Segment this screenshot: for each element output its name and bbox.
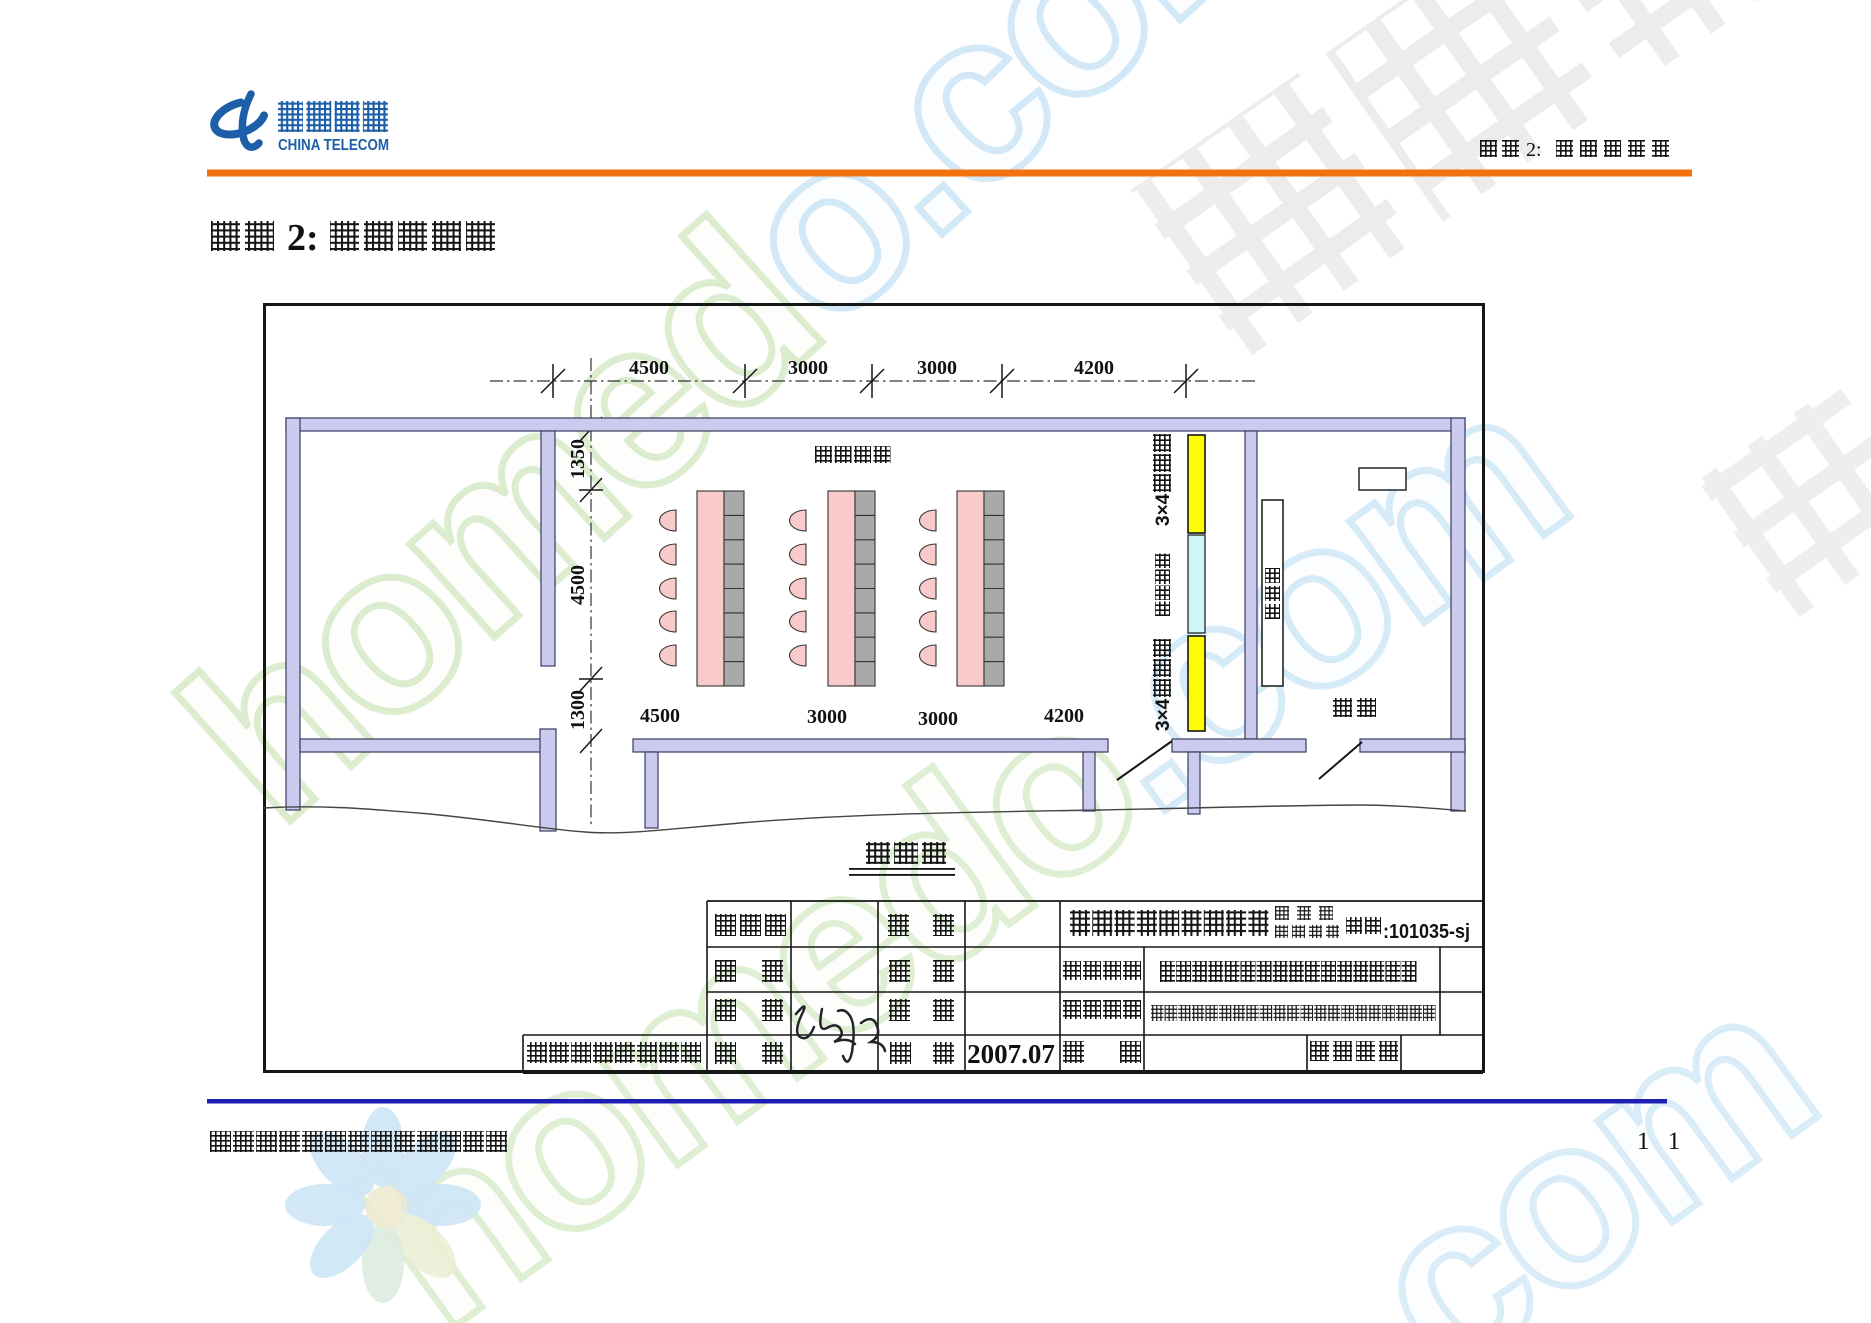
svg-text:4500: 4500 bbox=[567, 565, 589, 605]
svg-text:2007.07: 2007.07 bbox=[967, 1039, 1055, 1069]
svg-text:3000: 3000 bbox=[807, 706, 847, 728]
svg-text:CHINA TELECOM: CHINA TELECOM bbox=[278, 137, 389, 154]
svg-text:1300: 1300 bbox=[567, 690, 589, 730]
svg-text:3×4: 3×4 bbox=[1153, 698, 1174, 731]
svg-text:3000: 3000 bbox=[917, 357, 957, 379]
svg-text:1350: 1350 bbox=[567, 439, 589, 479]
svg-text:.com: .com bbox=[1274, 939, 1853, 1323]
svg-text:4500: 4500 bbox=[640, 705, 680, 727]
svg-text:4200: 4200 bbox=[1074, 357, 1114, 379]
svg-text:3000: 3000 bbox=[788, 357, 828, 379]
svg-text:3000: 3000 bbox=[918, 708, 958, 730]
svg-text:1 1: 1 1 bbox=[1637, 1128, 1686, 1155]
svg-text:4200: 4200 bbox=[1044, 705, 1084, 727]
svg-text:3×4: 3×4 bbox=[1153, 493, 1174, 526]
svg-text:2:: 2: bbox=[287, 217, 319, 259]
svg-text:2:: 2: bbox=[1526, 139, 1542, 161]
svg-text:4500: 4500 bbox=[629, 357, 669, 379]
svg-text::101035-sj: :101035-sj bbox=[1383, 921, 1470, 943]
